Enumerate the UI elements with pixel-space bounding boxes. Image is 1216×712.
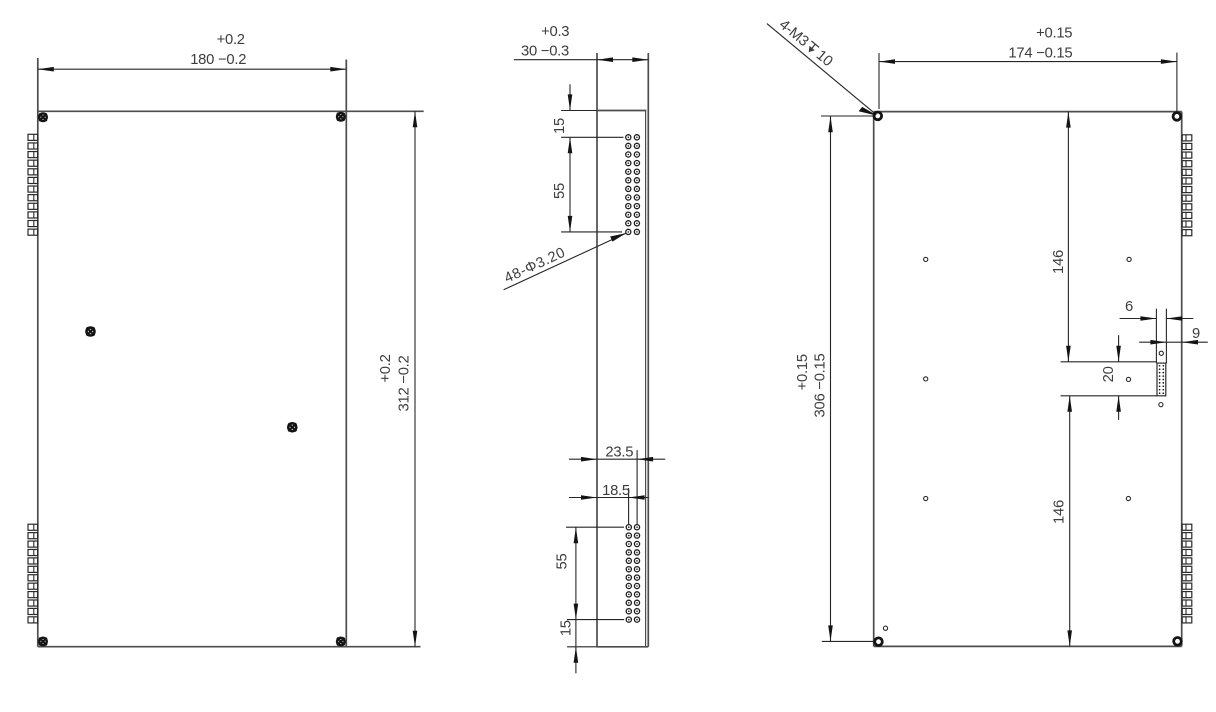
svg-text:174 −0.15: 174 −0.15 [1008, 45, 1072, 61]
svg-text:15: 15 [552, 118, 568, 134]
svg-text:180 −0.2: 180 −0.2 [190, 52, 246, 68]
svg-text:30 −0.3: 30 −0.3 [521, 44, 569, 60]
svg-text:+0.2: +0.2 [378, 354, 394, 382]
svg-text:6: 6 [1125, 299, 1133, 315]
svg-text:+0.2: +0.2 [217, 32, 245, 48]
svg-text:20: 20 [1101, 366, 1117, 382]
svg-text:306 −0.15: 306 −0.15 [813, 353, 829, 417]
svg-text:9: 9 [1192, 326, 1200, 342]
svg-text:+0.3: +0.3 [541, 24, 569, 40]
svg-text:312 −0.2: 312 −0.2 [397, 355, 413, 411]
svg-text:146: 146 [1051, 250, 1067, 274]
svg-text:15: 15 [559, 620, 575, 636]
svg-text:18.5: 18.5 [602, 483, 630, 499]
svg-text:23.5: 23.5 [605, 445, 633, 461]
svg-text:+0.15: +0.15 [795, 354, 811, 390]
svg-text:55: 55 [555, 554, 571, 570]
svg-text:55: 55 [552, 183, 568, 199]
svg-text:146: 146 [1052, 500, 1068, 524]
svg-text:+0.15: +0.15 [1036, 25, 1072, 41]
